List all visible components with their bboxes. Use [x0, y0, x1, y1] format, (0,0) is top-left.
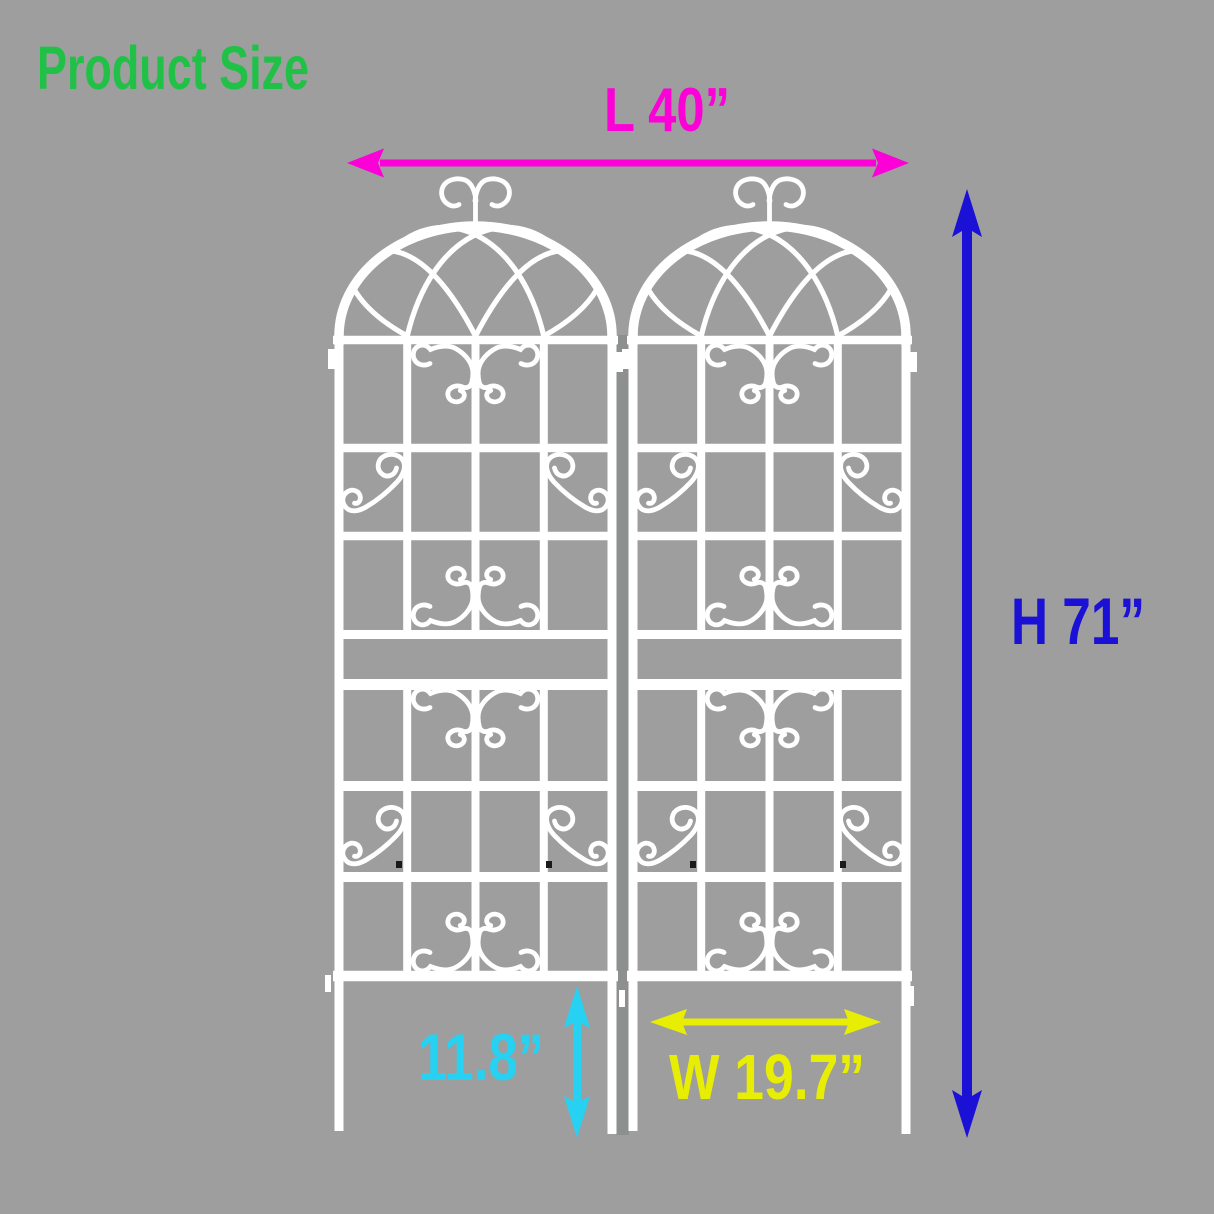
svg-text:11.8”: 11.8” [418, 1020, 544, 1094]
svg-text:L 40”: L 40” [604, 76, 730, 145]
svg-text:H 71”: H 71” [1011, 584, 1145, 658]
svg-text:W 19.7”: W 19.7” [669, 1041, 865, 1113]
svg-text:Product Size: Product Size [37, 34, 309, 102]
